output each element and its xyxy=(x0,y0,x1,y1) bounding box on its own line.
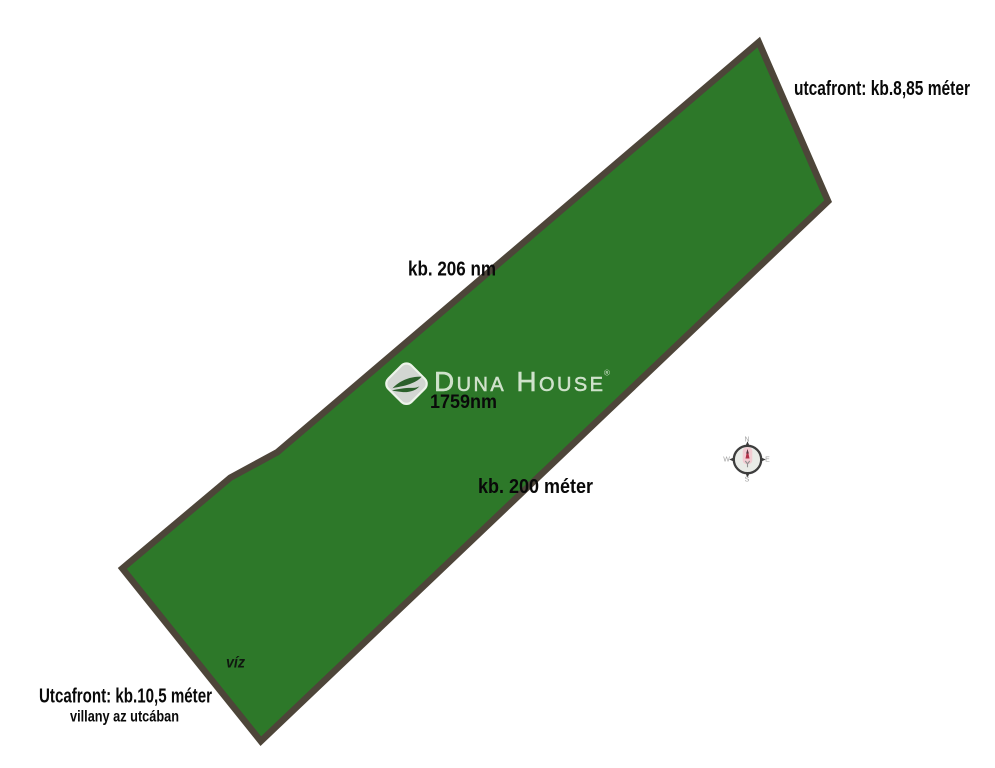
svg-text:kb. 206 nm: kb. 206 nm xyxy=(408,259,496,281)
svg-text:E: E xyxy=(765,457,770,464)
svg-text:víz: víz xyxy=(226,655,245,672)
svg-text:villany az utcában: villany az utcában xyxy=(70,709,179,726)
svg-text:®: ® xyxy=(604,369,610,378)
svg-text:S: S xyxy=(745,476,750,483)
svg-text:Utcafront: kb.10,5 méter: Utcafront: kb.10,5 méter xyxy=(39,686,212,708)
svg-text:1759nm: 1759nm xyxy=(430,392,497,413)
svg-text:N: N xyxy=(744,437,749,444)
svg-text:utcafront: kb.8,85 méter: utcafront: kb.8,85 méter xyxy=(794,78,970,100)
svg-text:W: W xyxy=(723,457,730,464)
svg-text:kb. 200 méter: kb. 200 méter xyxy=(478,476,593,498)
